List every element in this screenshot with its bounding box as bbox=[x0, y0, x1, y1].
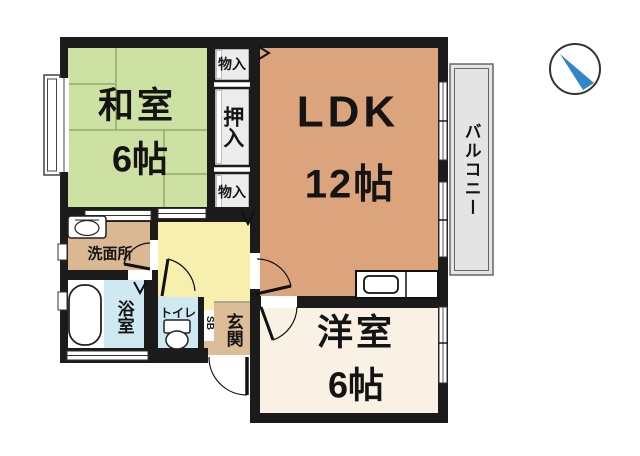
bathtub-icon bbox=[69, 285, 101, 345]
wall-bath-toilet bbox=[144, 278, 158, 352]
window-washroom bbox=[58, 244, 67, 260]
washitsu-floor bbox=[68, 46, 209, 216]
door-arc-entrance bbox=[209, 357, 247, 395]
toilet-label: トイレ bbox=[160, 307, 196, 319]
entrance-label: 玄関 bbox=[224, 313, 241, 347]
bay-window-washitsu-inner bbox=[48, 79, 57, 171]
wall-center-vertical bbox=[250, 46, 260, 423]
washroom-label: 洗面所 bbox=[87, 246, 132, 261]
floor-plan-drawing bbox=[0, 0, 640, 456]
oshiire-label: 押入 bbox=[221, 106, 242, 148]
storage-bottom-label: 物入 bbox=[218, 185, 246, 199]
toilet-icon bbox=[164, 320, 190, 349]
youshitsu-size-label: 6帖 bbox=[328, 368, 384, 405]
opening-washroom bbox=[150, 240, 158, 270]
hallway-floor bbox=[156, 218, 252, 310]
washitsu-size-label: 6帖 bbox=[112, 142, 168, 179]
compass-north-icon bbox=[550, 44, 600, 94]
opening-hall-ldk bbox=[250, 253, 260, 289]
wall-washitsu-closet bbox=[207, 46, 214, 218]
window-bathroom bbox=[58, 292, 67, 310]
washbasin-icon bbox=[68, 216, 106, 238]
opening-bath bbox=[128, 270, 152, 280]
floor-plan: 和室 6帖 LDK 12帖 洋室 6帖 バルコニー 洗面所 浴室 トイレ SB … bbox=[0, 0, 640, 456]
kitchen-counter bbox=[356, 271, 438, 298]
shoe-box-label: SB bbox=[204, 316, 214, 330]
ldk-size-label: 12帖 bbox=[305, 165, 396, 206]
wall-youshitsu-bottom bbox=[250, 413, 448, 423]
balcony-label: バルコニー bbox=[462, 123, 479, 218]
ldk-label: LDK bbox=[297, 91, 399, 136]
kitchen-sink-icon bbox=[364, 276, 398, 293]
youshitsu-label: 洋室 bbox=[317, 315, 395, 352]
bathroom-label: 浴室 bbox=[115, 300, 132, 334]
storage-top-label: 物入 bbox=[218, 57, 246, 71]
washitsu-label: 和室 bbox=[98, 88, 176, 125]
opening-ldk-youshitsu bbox=[261, 296, 297, 308]
